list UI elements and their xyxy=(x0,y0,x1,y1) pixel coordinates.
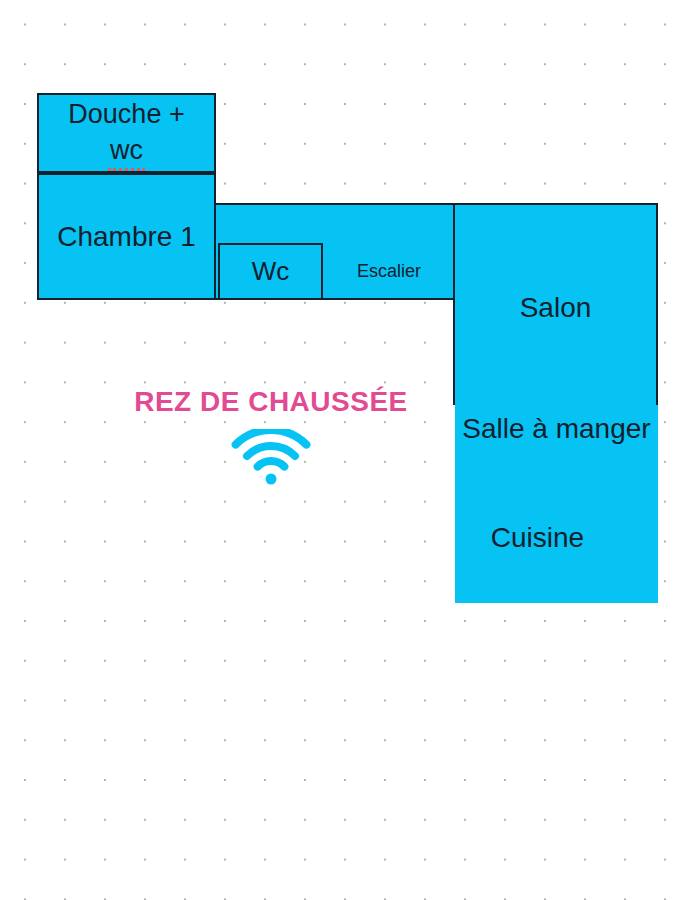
room-salle-a-manger-label: Salle à manger xyxy=(455,413,658,445)
floor-title: REZ DE CHAUSSÉE xyxy=(71,386,471,418)
room-escalier-label: Escalier xyxy=(357,261,421,282)
room-chambre-1-label: Chambre 1 xyxy=(57,221,196,253)
room-douche-wc: Douche + wc xyxy=(37,93,216,173)
room-wc-label: Wc xyxy=(252,256,290,287)
room-salon-label: Salon xyxy=(520,292,592,324)
room-salon: Salon xyxy=(453,203,658,405)
floor-plan-canvas: Douche + wc Chambre 1 Wc Escalier Salon … xyxy=(0,0,689,900)
room-wc: Wc xyxy=(218,243,323,300)
room-cuisine-label: Cuisine xyxy=(436,522,639,554)
room-douche-wc-label-line2: wc xyxy=(108,132,145,171)
room-escalier-label-zone: Escalier xyxy=(325,245,453,298)
room-chambre-1: Chambre 1 xyxy=(37,173,216,300)
room-douche-wc-label-line1: Douche + xyxy=(68,96,184,132)
wifi-icon xyxy=(229,429,313,485)
